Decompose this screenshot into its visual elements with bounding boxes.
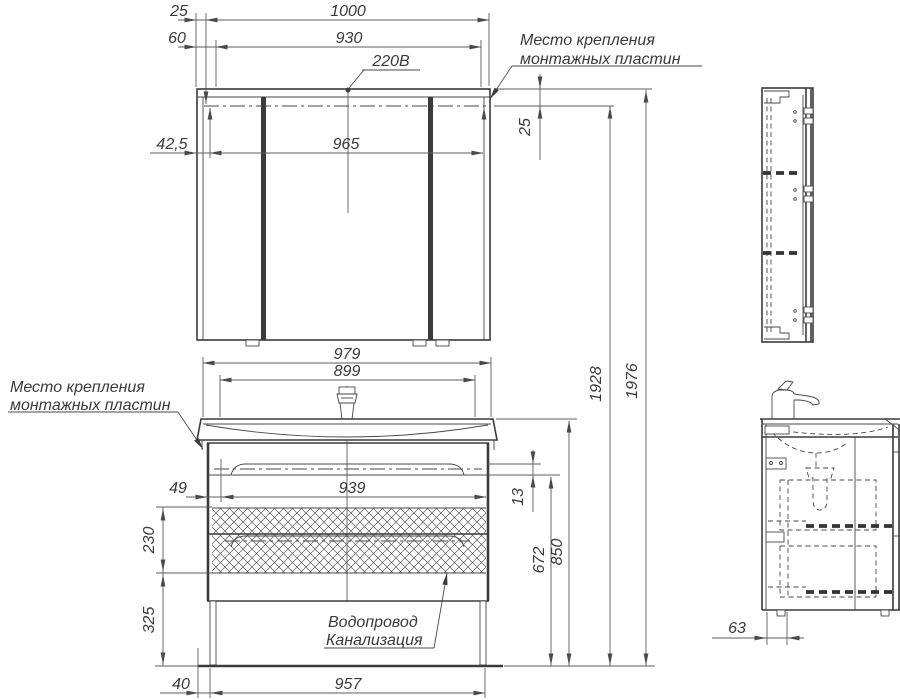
dim-mirror-width: 1000 (330, 3, 366, 20)
mounting-bracket (765, 426, 789, 434)
plumbing-note-line1: Водопровод (328, 614, 418, 631)
dim-span-930: 930 (336, 30, 363, 47)
door-handle (246, 340, 259, 346)
door-handle (436, 340, 449, 346)
cabinet-leg (210, 601, 216, 665)
dim-edge-49: 49 (169, 480, 187, 497)
power-outlet-point (346, 88, 351, 93)
dim-bottom-clearance: 325 (141, 607, 158, 634)
dimension-lines (150, 13, 804, 698)
drawer-box-hidden (780, 546, 876, 597)
drawer-box-hidden (780, 480, 876, 530)
faucet-side (772, 390, 819, 419)
dim-gap-13: 13 (510, 488, 527, 506)
mount-note-top-line1: Место крепления (520, 32, 655, 49)
dim-height-to-plate: 1928 (588, 366, 605, 402)
dim-wall-offset: 63 (728, 620, 746, 637)
door-handle (413, 340, 426, 346)
mirror-door-divider (261, 97, 266, 340)
dim-vanity-width: 979 (334, 346, 361, 363)
furniture-installation-drawing: 25 1000 60 930 220В 42,5 965 25 1928 197… (0, 0, 900, 700)
faucet-front (337, 387, 357, 419)
dim-height-overall: 1976 (624, 363, 641, 399)
mirror-cabinet-side-view (762, 88, 813, 342)
dimension-labels: 25 1000 60 930 220В 42,5 965 25 1928 197… (141, 3, 746, 693)
dim-drawer-span: 939 (339, 480, 366, 497)
mount-note-left-line1: Место крепления (10, 379, 145, 396)
dim-drawer-height: 230 (141, 527, 158, 555)
dim-cabinet-height: 672 (531, 547, 548, 574)
mount-note-left-line2: монтажных пластин (10, 397, 171, 414)
dim-top-offset: 25 (169, 3, 188, 20)
mirror-cabinet-front-view (197, 88, 490, 346)
cabinet-leg (480, 601, 486, 665)
plumbing-zone-hatch (212, 508, 486, 573)
dim-span-965: 965 (333, 136, 360, 153)
drawer-handle-groove (231, 464, 464, 475)
faucet-lever (778, 381, 793, 390)
power-label: 220В (371, 53, 410, 70)
siphon-hidden (806, 468, 834, 510)
mirror-cabinet-body (197, 89, 490, 340)
cabinet-leg (777, 610, 785, 616)
technical-drawing-page: 25 1000 60 930 220В 42,5 965 25 1928 197… (0, 0, 900, 700)
dim-edge-42-5: 42,5 (156, 136, 187, 153)
vanity-side-view (760, 381, 900, 616)
plumbing-note-line2: Канализация (326, 632, 423, 649)
dim-base-width: 957 (335, 676, 363, 693)
dim-sink-height: 850 (549, 539, 566, 566)
dim-side-offset: 60 (168, 30, 186, 47)
mount-note-top-line2: монтажных пластин (520, 51, 681, 68)
dim-basin-width: 899 (334, 363, 361, 380)
cabinet-leg (881, 610, 889, 616)
mirror-door-divider (428, 97, 433, 340)
dim-plate-depth: 25 (517, 118, 534, 137)
dim-leg-inset: 40 (172, 676, 190, 693)
